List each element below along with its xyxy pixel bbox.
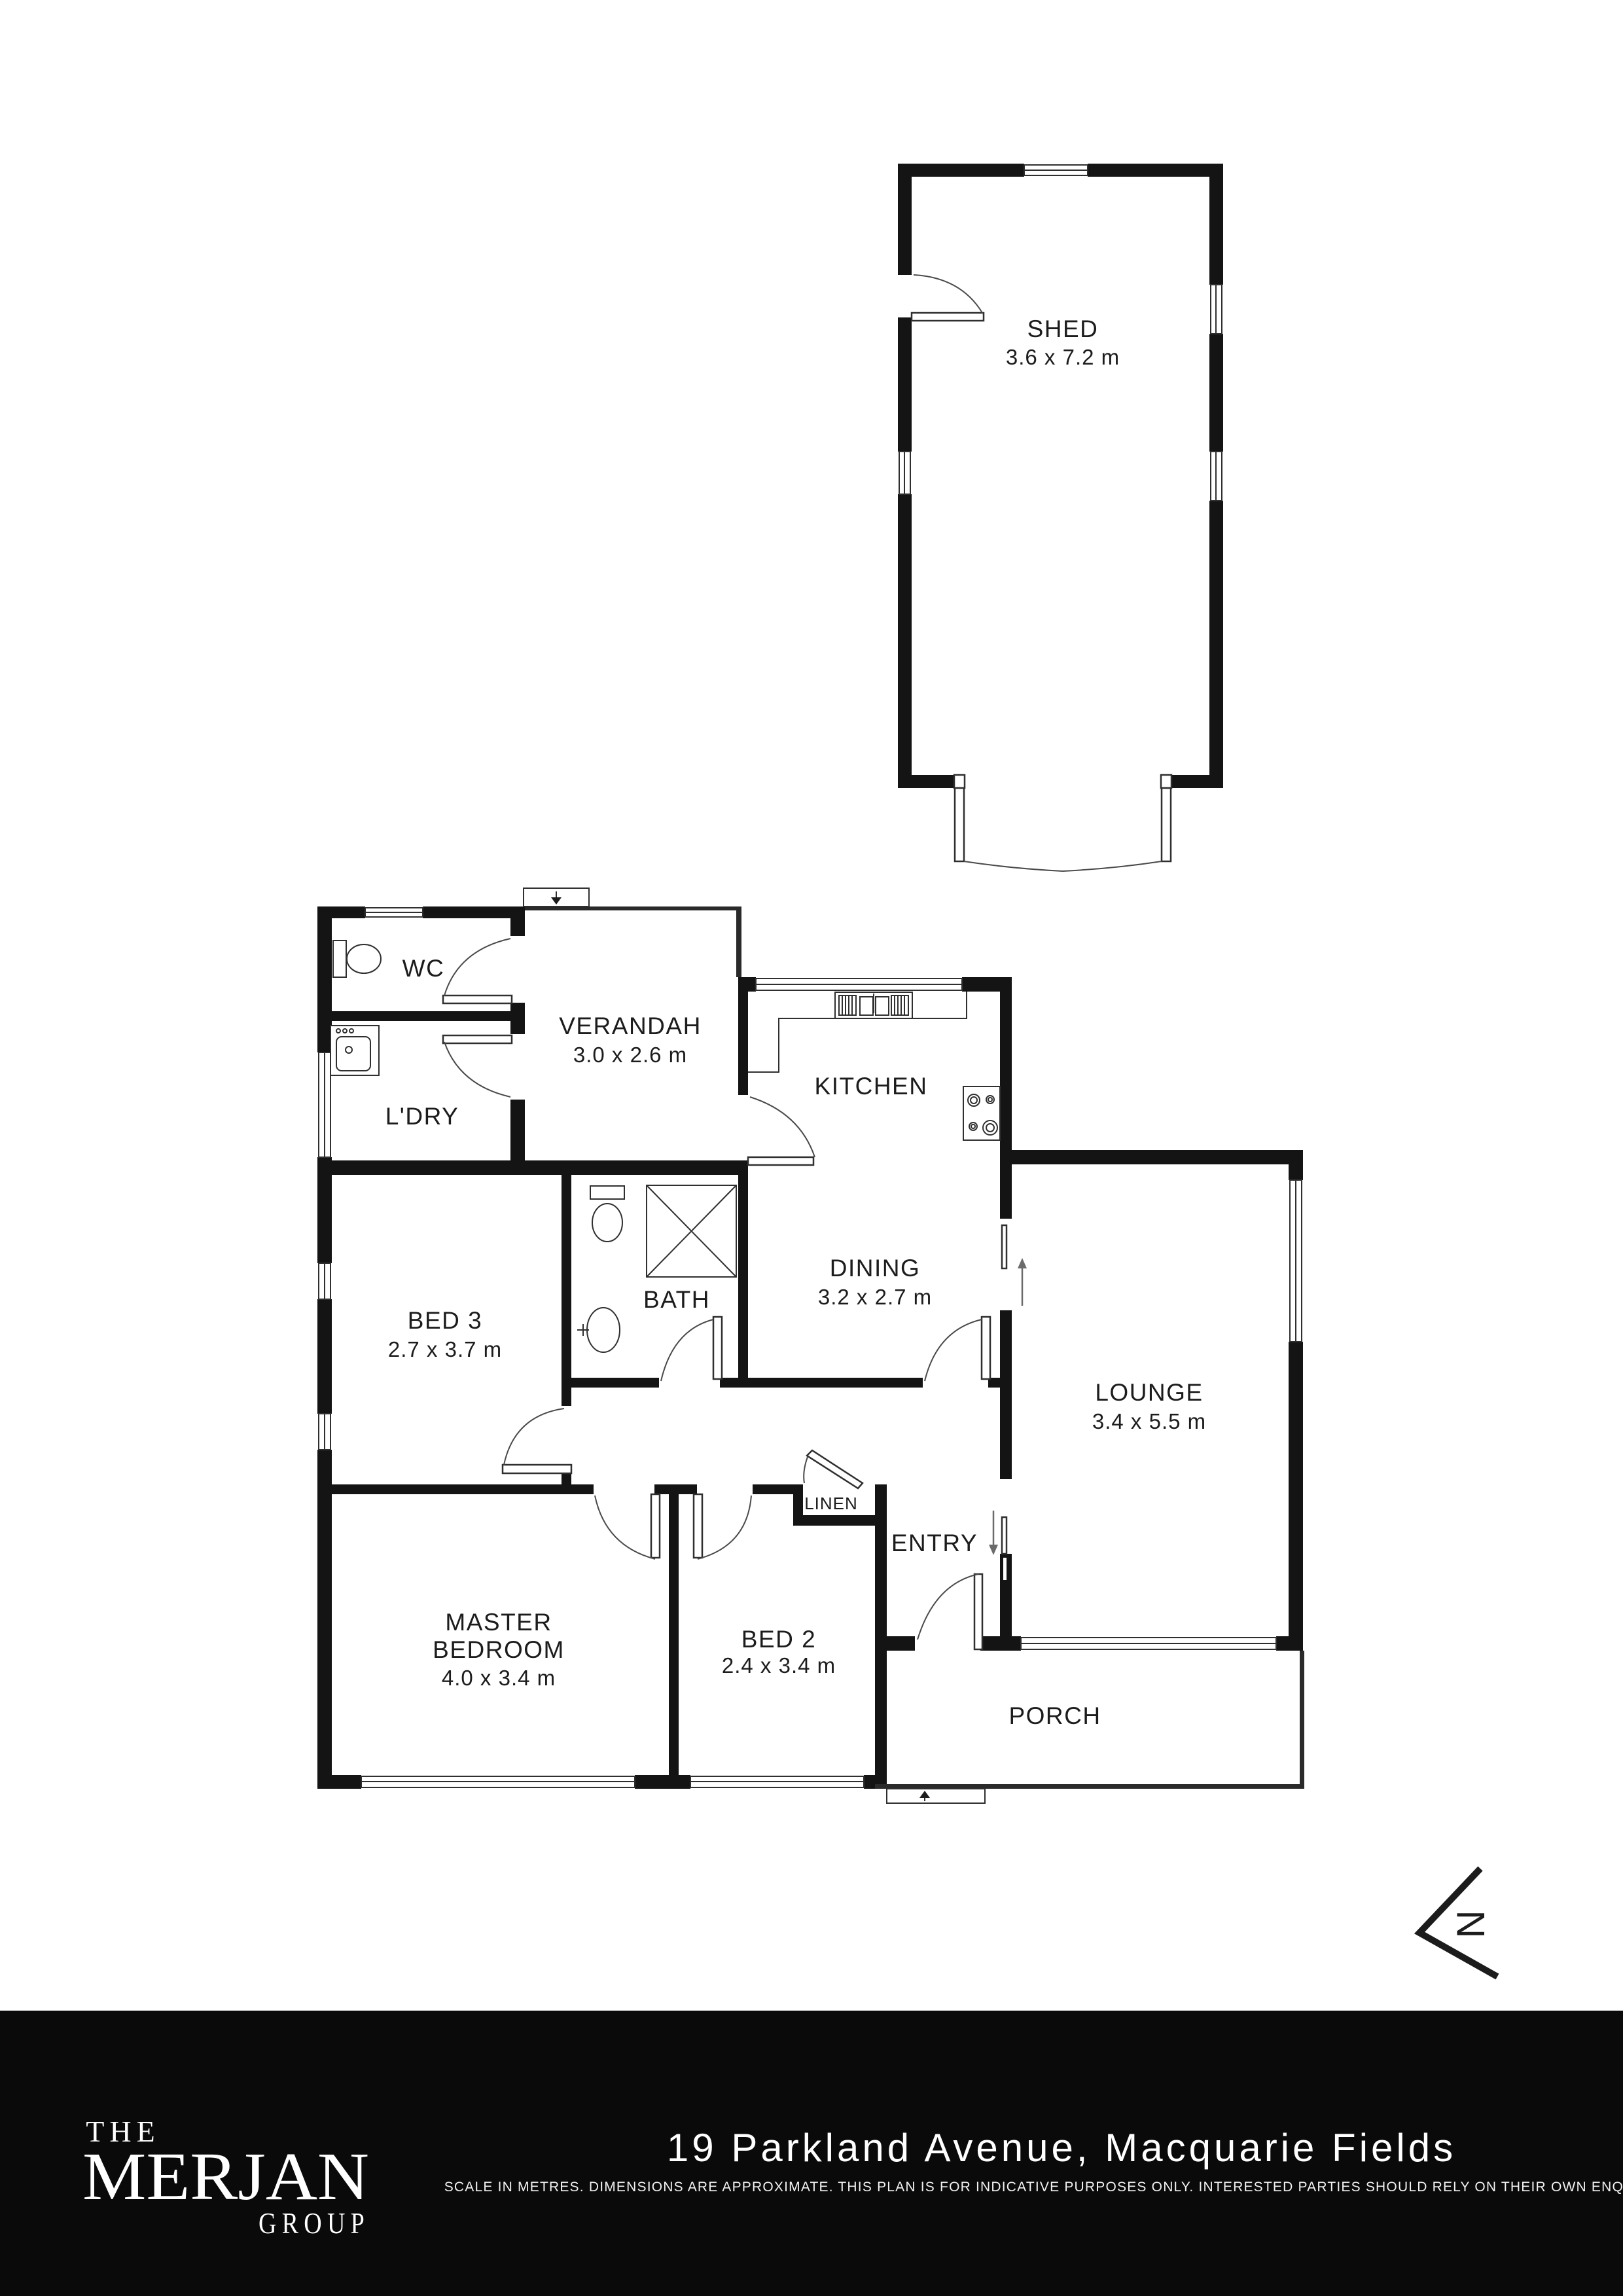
linen-door [804,1450,863,1488]
room-label-entry: ENTRY [891,1530,978,1556]
room-label-lounge: LOUNGE [1095,1379,1203,1406]
room-label-porch: PORCH [1008,1702,1101,1729]
dining-door [925,1317,990,1381]
shed-double-door [954,775,1171,871]
north-indicator: N [1419,1869,1497,1977]
room-label-kitchen: KITCHEN [815,1073,928,1100]
room-label-master-1: MASTER [445,1609,552,1636]
kitchen-door [748,1097,815,1165]
room-label-bed3: BED 3 [408,1307,482,1334]
wc-door [443,939,512,1003]
north-letter: N [1449,1910,1493,1938]
room-label-verandah: VERANDAH [559,1013,702,1039]
room-label-bed2: BED 2 [741,1626,816,1653]
plan-disclaimer: SCALE IN METRES. DIMENSIONS ARE APPROXIM… [444,2179,1623,2195]
room-label-linen: LINEN [804,1494,858,1513]
porch-step [887,1789,985,1803]
basin-icon [577,1308,620,1352]
entry-lounge-slider [989,1511,1007,1580]
bath-door [661,1317,722,1381]
shed-label: SHED 3.6 x 7.2 m [1006,315,1120,369]
shower-icon [647,1185,736,1277]
floorplan-page: SHED 3.6 x 7.2 m [0,0,1623,2296]
room-labels: WC VERANDAH 3.0 x 2.6 m L'DRY KITCHEN DI… [385,955,1206,1729]
room-dims-dining: 3.2 x 2.7 m [818,1285,932,1309]
stove-icon [963,1086,1000,1140]
shed-door [912,275,984,321]
room-dims-verandah: 3.0 x 2.6 m [573,1043,687,1067]
room-dims-shed: 3.6 x 7.2 m [1006,345,1120,369]
shed-outline: SHED 3.6 x 7.2 m [898,164,1223,871]
kitchen-sink-icon [835,992,912,1018]
room-dims-master: 4.0 x 3.4 m [442,1666,556,1690]
room-label-wc: WC [402,955,445,982]
property-address: 19 Parkland Avenue, Macquarie Fields [667,2126,1456,2170]
room-label-bath: BATH [643,1286,710,1313]
room-label-ldry: L'DRY [385,1103,459,1130]
laundry-sink-icon [330,1026,379,1075]
verandah-step [524,888,589,906]
master-door [595,1494,660,1559]
footer: THE MERJAN GROUP 19 Parkland Avenue, Mac… [0,2011,1623,2296]
bath-toilet-icon [590,1186,624,1242]
toilet-icon [333,941,381,977]
brand-line-merjan: MERJAN [82,2139,369,2214]
brand-line-group: GROUP [259,2206,370,2240]
room-dims-bed3: 2.7 x 3.7 m [388,1337,502,1361]
bed3-door [503,1408,571,1473]
floorplan-canvas: SHED 3.6 x 7.2 m [0,0,1623,2296]
room-dims-bed2: 2.4 x 3.4 m [722,1653,836,1677]
room-label-shed: SHED [1027,315,1099,342]
room-dims-lounge: 3.4 x 5.5 m [1092,1409,1206,1433]
bed2-door [694,1494,751,1559]
ldry-door [443,1035,512,1097]
room-label-dining: DINING [830,1255,921,1282]
room-label-master-2: BEDROOM [433,1636,565,1663]
